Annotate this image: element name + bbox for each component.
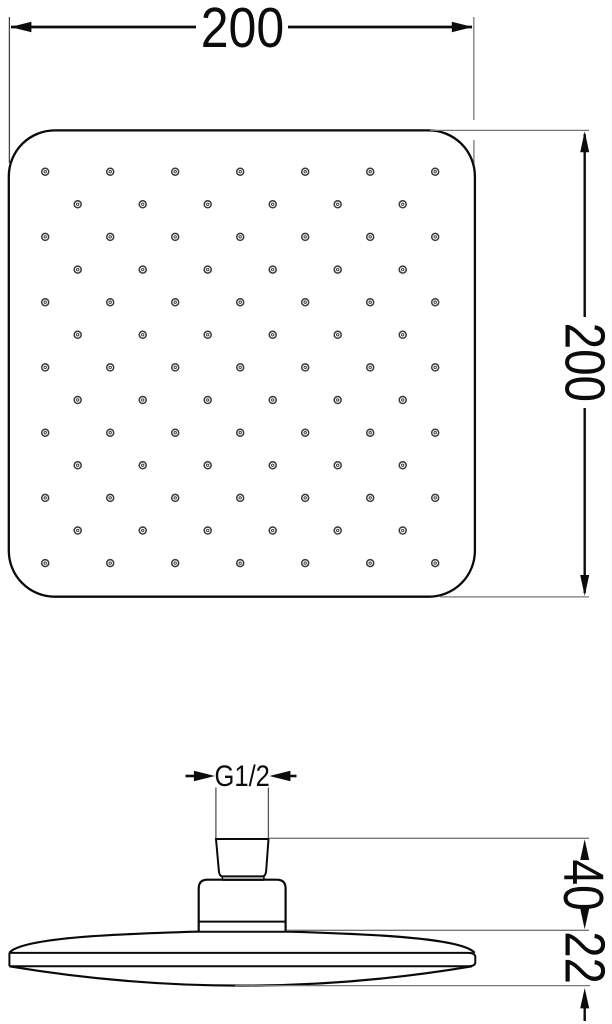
svg-text:200: 200 (201, 0, 285, 59)
svg-text:40: 40 (552, 859, 612, 911)
svg-text:G1/2: G1/2 (215, 760, 270, 793)
svg-text:22: 22 (553, 931, 612, 984)
svg-text:200: 200 (553, 323, 612, 402)
